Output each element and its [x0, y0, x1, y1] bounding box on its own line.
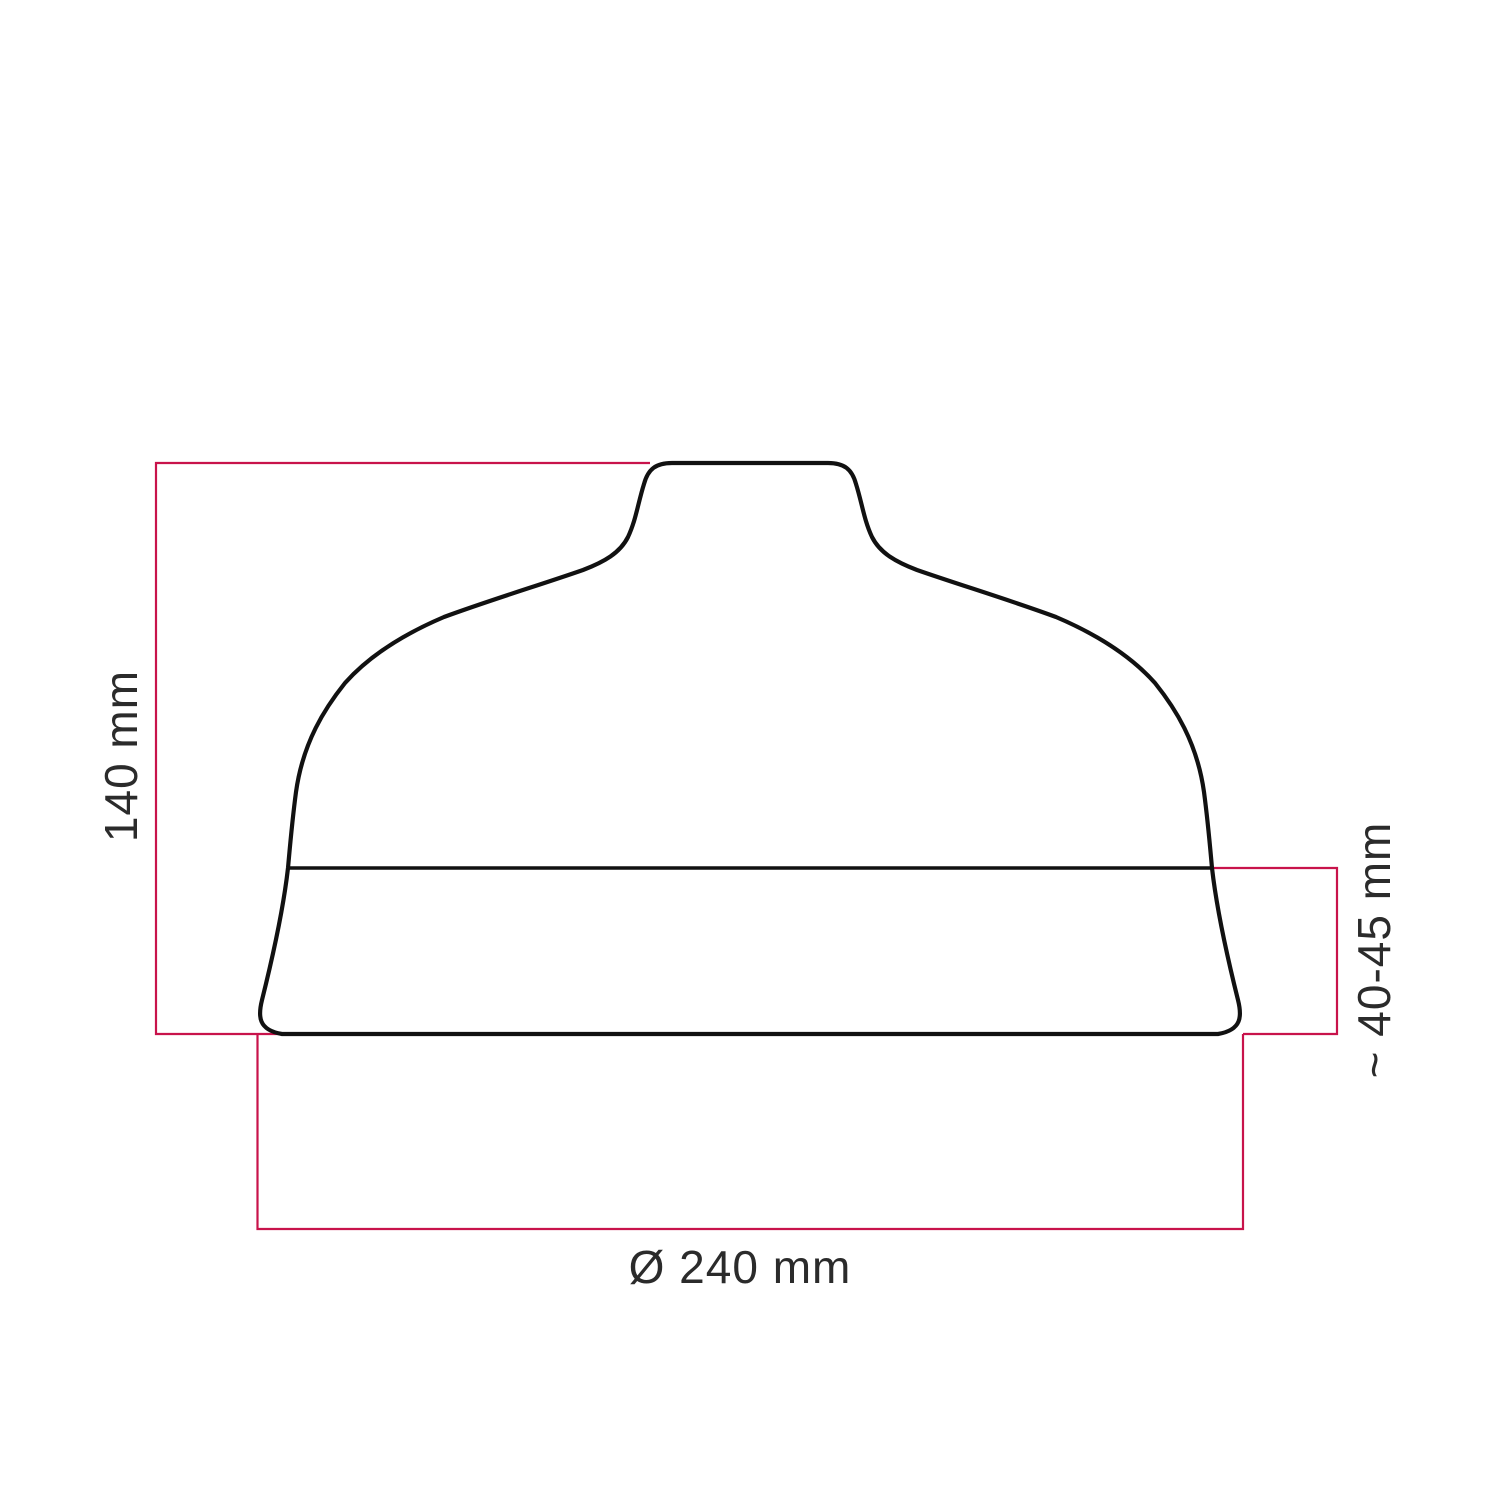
lampshade-outline — [260, 463, 1240, 1034]
diameter-dimension-line — [258, 1034, 1244, 1229]
diameter-label: Ø 240 mm — [629, 1241, 852, 1293]
height-dimension-line — [156, 463, 650, 1034]
diagram-canvas: 140 mm ~ 40-45 mm Ø 240 mm — [0, 0, 1500, 1500]
height-label: 140 mm — [95, 670, 147, 842]
lower-section-label: ~ 40-45 mm — [1348, 822, 1400, 1079]
lower-section-dimension-line — [1210, 868, 1337, 1034]
dimension-diagram: 140 mm ~ 40-45 mm Ø 240 mm — [0, 0, 1500, 1500]
